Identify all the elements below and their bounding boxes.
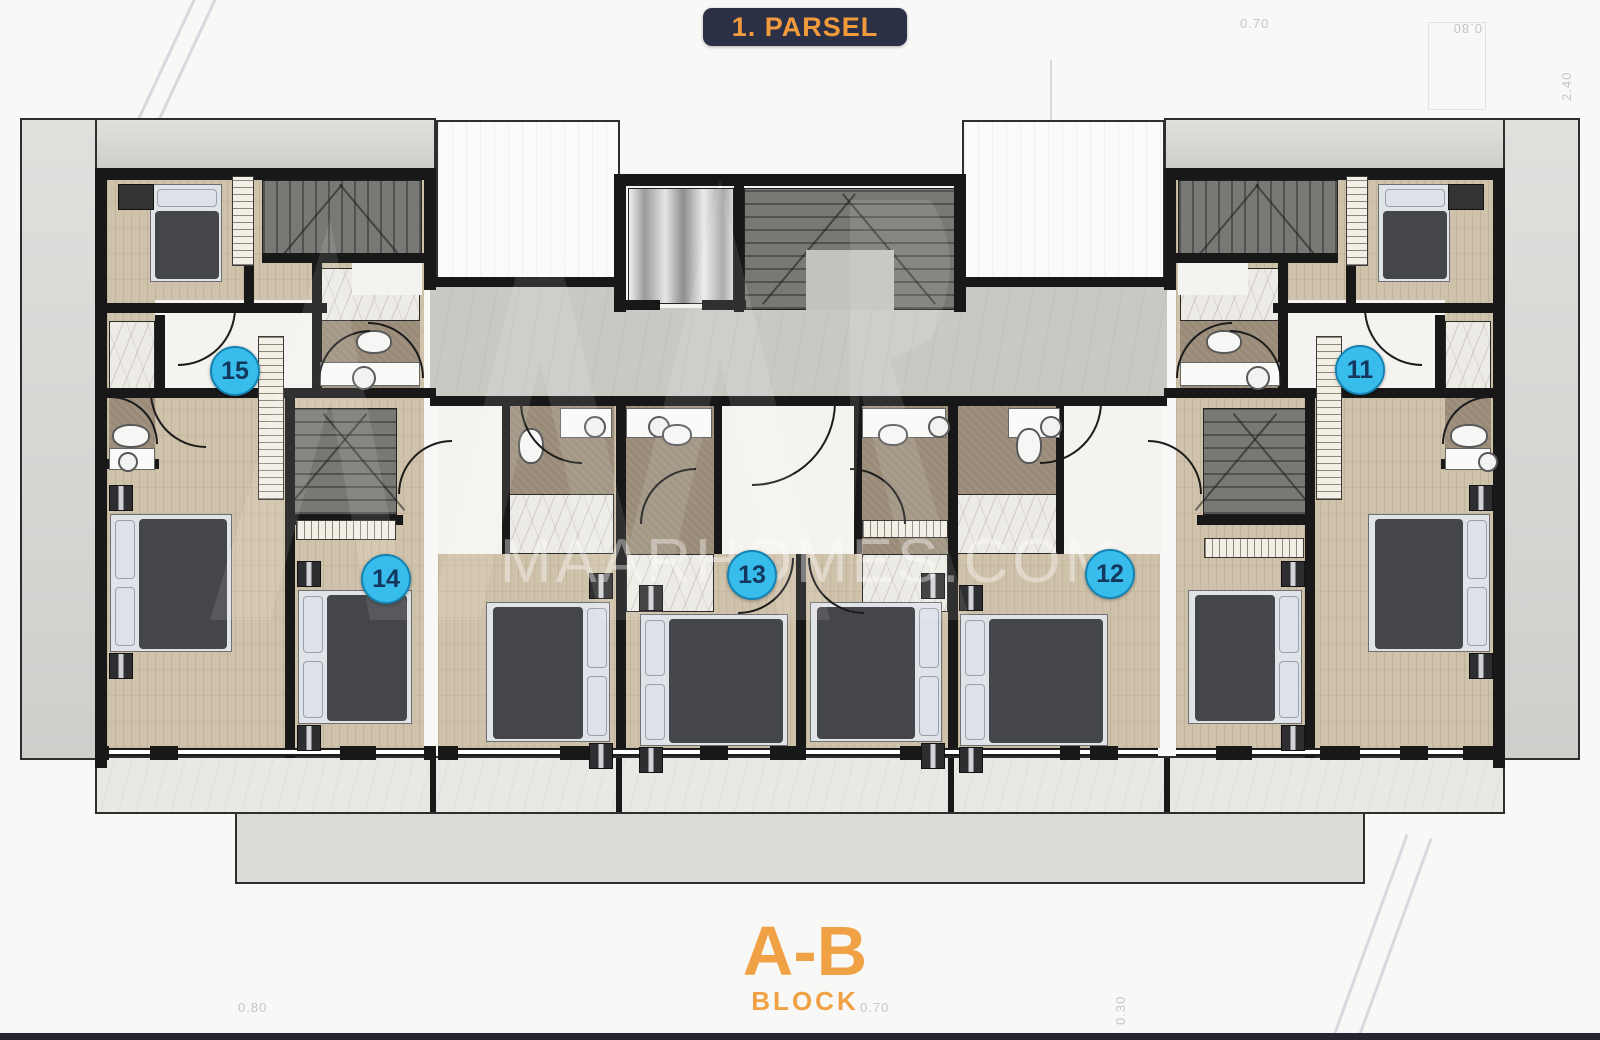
unit-badge-15[interactable]: 15: [210, 346, 260, 396]
floor-plan-canvas: 0.800.700.302.400.800.702.501.000.361.40…: [0, 0, 1600, 1040]
unit-badge-12[interactable]: 12: [1085, 549, 1135, 599]
unit-badge-13[interactable]: 13: [727, 550, 777, 600]
unit-badges-layer: 1514131211: [0, 0, 1600, 1040]
block-label: A-B BLOCK: [655, 916, 955, 1017]
bottom-edge-bar: [0, 1033, 1600, 1040]
unit-badge-11[interactable]: 11: [1335, 345, 1385, 395]
parcel-title-badge: 1. PARSEL: [703, 8, 907, 46]
block-title: A-B: [655, 916, 955, 986]
block-subtitle: BLOCK: [655, 986, 955, 1017]
unit-badge-14[interactable]: 14: [361, 554, 411, 604]
